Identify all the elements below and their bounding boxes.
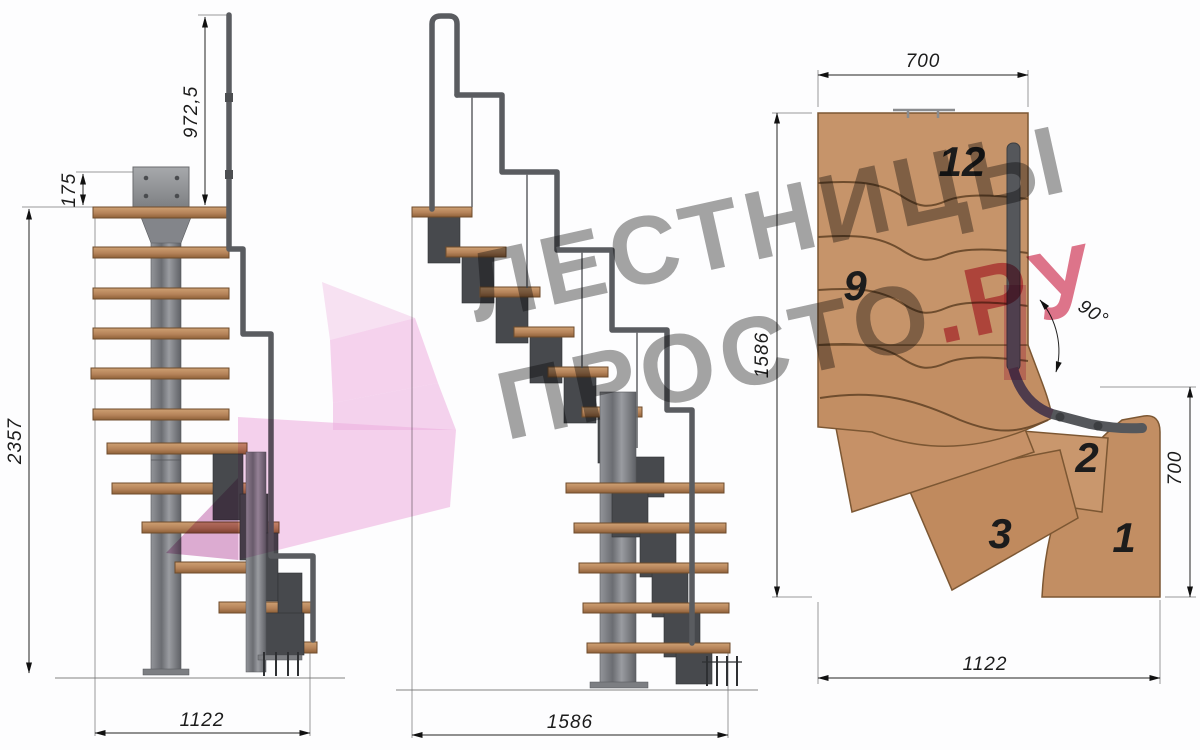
dimension-handrail-height: 972,5	[181, 86, 202, 139]
dimension-front-width: 1122	[180, 710, 225, 731]
column-base-plate	[143, 669, 189, 675]
tread-number-2: 2	[1074, 434, 1098, 481]
staircase-drawing: 972,5 175 2357 1122	[0, 0, 1200, 750]
technical-drawing-page: 972,5 175 2357 1122	[0, 0, 1200, 750]
rail-joint	[1094, 422, 1103, 431]
arrow-shape-band	[238, 417, 456, 560]
center-column	[151, 207, 181, 673]
wall-mounting-plate	[133, 167, 189, 207]
dimension-plate-offset: 175	[59, 173, 80, 208]
front-view: 972,5 175 2357 1122	[5, 15, 345, 736]
dimension-plan-top: 700	[906, 51, 941, 72]
rail-joint	[1056, 413, 1065, 422]
watermark-arrow-logo	[166, 282, 456, 560]
dimension-total-height: 2357	[5, 417, 26, 465]
anchor-bolts	[702, 656, 742, 686]
rail-joint-collar	[225, 170, 233, 179]
dimension-plan-right: 700	[1165, 451, 1186, 486]
dimension-side-depth: 1586	[547, 712, 593, 733]
dimension-plan-bottom: 1122	[963, 654, 1008, 675]
tread-number-1: 1	[1112, 514, 1135, 561]
rail-joint-collar	[225, 93, 233, 102]
column-base-plate	[590, 682, 648, 688]
tread-number-3: 3	[988, 510, 1011, 557]
handrail-top-loop	[432, 16, 457, 209]
